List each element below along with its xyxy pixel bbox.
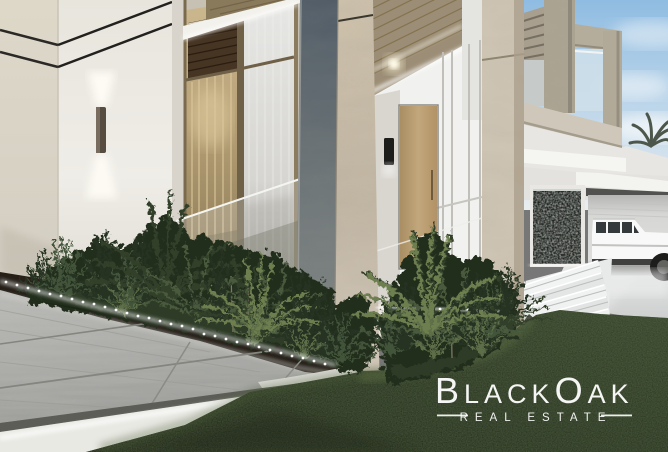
svg-text:REAL ESTATE: REAL ESTATE xyxy=(460,412,613,424)
